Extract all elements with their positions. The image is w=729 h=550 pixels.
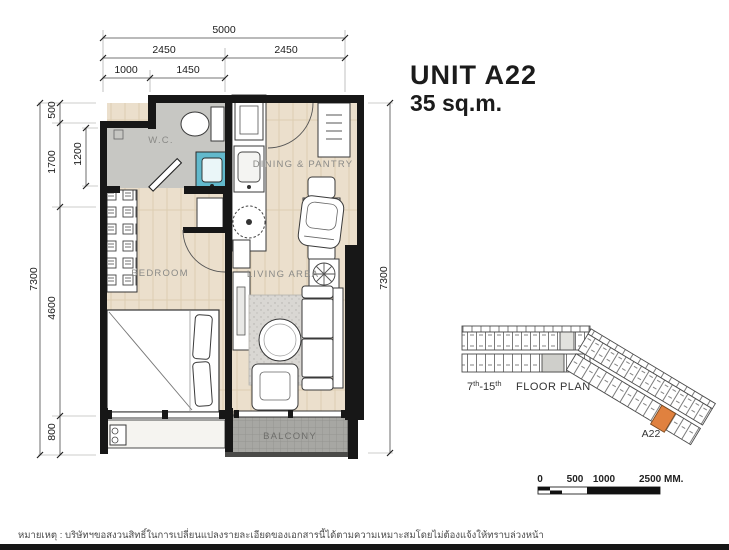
floorplan-canvas: W.C. DINING & PANTRY BEDROOM LIVING AREA… <box>0 0 729 550</box>
keyplan: 7th-15th FLOOR PLAN A22 <box>462 326 715 447</box>
coffee-table <box>259 319 301 361</box>
pillow-bottom <box>192 361 212 406</box>
disclaimer-note: หมายเหตุ : บริษัทฯขอสงวนสิทธิ์ในการเปลี่… <box>18 527 544 541</box>
kitchen-faucet <box>247 185 251 189</box>
dim-seg-800: 800 <box>46 423 58 441</box>
room-label-wc: W.C. <box>148 135 173 146</box>
sofa-back <box>333 288 343 388</box>
unit-area: 35 sq.m. <box>410 90 502 116</box>
armchair <box>252 364 298 410</box>
tv-screen <box>237 287 245 335</box>
scalebar-seg-2 <box>550 491 562 495</box>
title-block: UNIT A22 35 sq.m. <box>410 60 537 116</box>
wall-step <box>100 121 152 128</box>
sofa-seat-1 <box>302 299 333 338</box>
dim-sub-right: 1450 <box>176 64 200 76</box>
keyplan-floor-range: 7th-15th <box>467 379 502 393</box>
cooktop-knob <box>246 219 252 225</box>
room-label-living: LIVING AREA <box>247 269 319 280</box>
dim-seg-4600: 4600 <box>46 296 58 320</box>
scalebar-seg-3 <box>587 487 660 494</box>
dim-height-right-total: 7300 <box>378 266 390 290</box>
toilet-tank <box>211 107 224 141</box>
scale-0: 0 <box>537 474 543 485</box>
chaise-chair <box>297 195 345 250</box>
room-label-balcony: BALCONY <box>263 431 317 442</box>
toilet-bowl <box>181 112 209 136</box>
wall-wc-bottom-left <box>100 186 120 193</box>
wall-left-bottom <box>100 408 108 454</box>
room-label-bedroom: BEDROOM <box>131 268 189 279</box>
scale-1000: 1000 <box>593 474 616 485</box>
dim-height-left-total: 7300 <box>28 267 40 291</box>
wall-right-lower <box>345 245 364 420</box>
wall-top <box>148 95 364 103</box>
shoe-cabinet <box>318 103 350 157</box>
sofa-arm-bottom <box>302 378 333 390</box>
dim-width-right: 2450 <box>274 44 298 56</box>
wall-balcony-right <box>348 415 358 459</box>
unit-title: UNIT A22 <box>410 60 537 90</box>
keyplan-title: FLOOR PLAN <box>516 381 591 393</box>
scale-2500: 2500 MM. <box>639 474 684 485</box>
scalebar: 0 500 1000 2500 MM. <box>537 474 683 494</box>
sofa <box>302 286 343 390</box>
floorplan-sheet: W.C. DINING & PANTRY BEDROOM LIVING AREA… <box>0 0 729 550</box>
scalebar-seg-1 <box>538 487 550 491</box>
pillow-top <box>192 314 212 359</box>
wall-right-upper <box>357 95 364 247</box>
dim-seg-500: 500 <box>46 101 58 119</box>
wall-left <box>100 121 107 420</box>
wall-wc-right <box>225 95 232 195</box>
dim-seg-1700: 1700 <box>46 150 58 174</box>
sheet-bottom-edge <box>0 544 729 550</box>
wall-balcony-divider <box>225 408 233 452</box>
scale-500: 500 <box>567 474 584 485</box>
keyplan-unit-label: A22 <box>642 428 661 440</box>
vanity-sink <box>202 158 222 182</box>
dining-chair-top <box>308 177 335 198</box>
balcony-edge <box>225 452 358 457</box>
wall-wc-bottom-right <box>184 186 232 194</box>
bedroom-door-leaf <box>183 227 225 233</box>
dim-width-left: 2450 <box>152 44 176 56</box>
wall-center <box>225 230 232 420</box>
sofa-arm-top <box>302 286 333 298</box>
wall-center-top <box>223 194 232 232</box>
dim-seg-1200: 1200 <box>72 142 84 166</box>
room-label-dining: DINING & PANTRY <box>253 159 354 170</box>
sofa-seat-2 <box>302 339 333 377</box>
media-shelf <box>233 240 250 268</box>
dim-total-width: 5000 <box>212 24 236 36</box>
dim-sub-left: 1000 <box>114 64 138 76</box>
bedroom-tv-console <box>197 198 223 230</box>
